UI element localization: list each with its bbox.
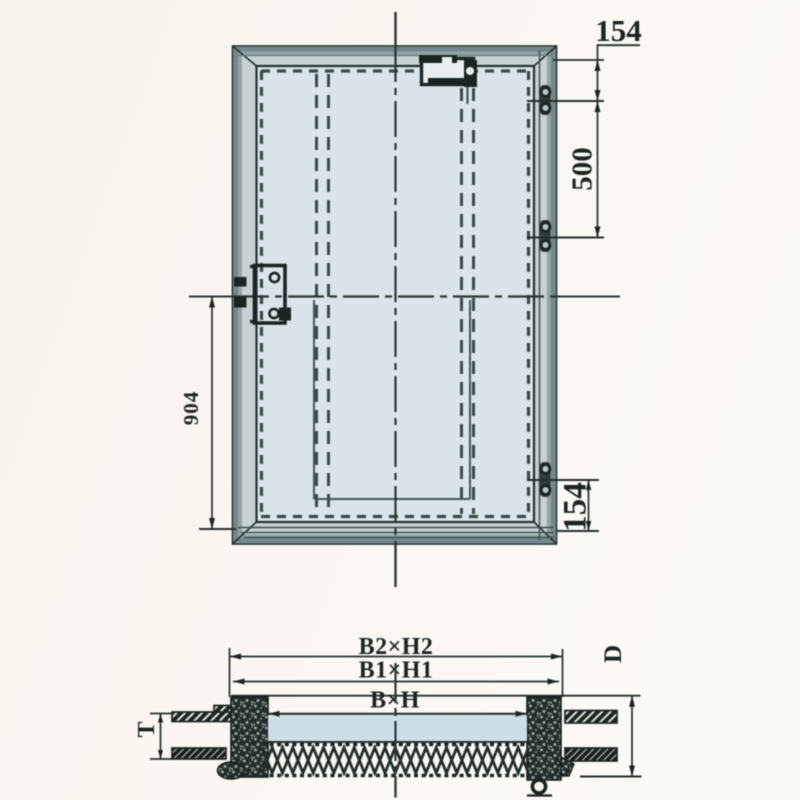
- svg-text:T: T: [134, 721, 160, 737]
- svg-text:154: 154: [595, 13, 642, 48]
- svg-text:D: D: [600, 645, 627, 663]
- svg-text:500: 500: [567, 147, 599, 191]
- svg-text:154: 154: [558, 482, 594, 532]
- svg-text:904: 904: [179, 391, 203, 426]
- svg-text:B2×H2: B2×H2: [359, 634, 434, 660]
